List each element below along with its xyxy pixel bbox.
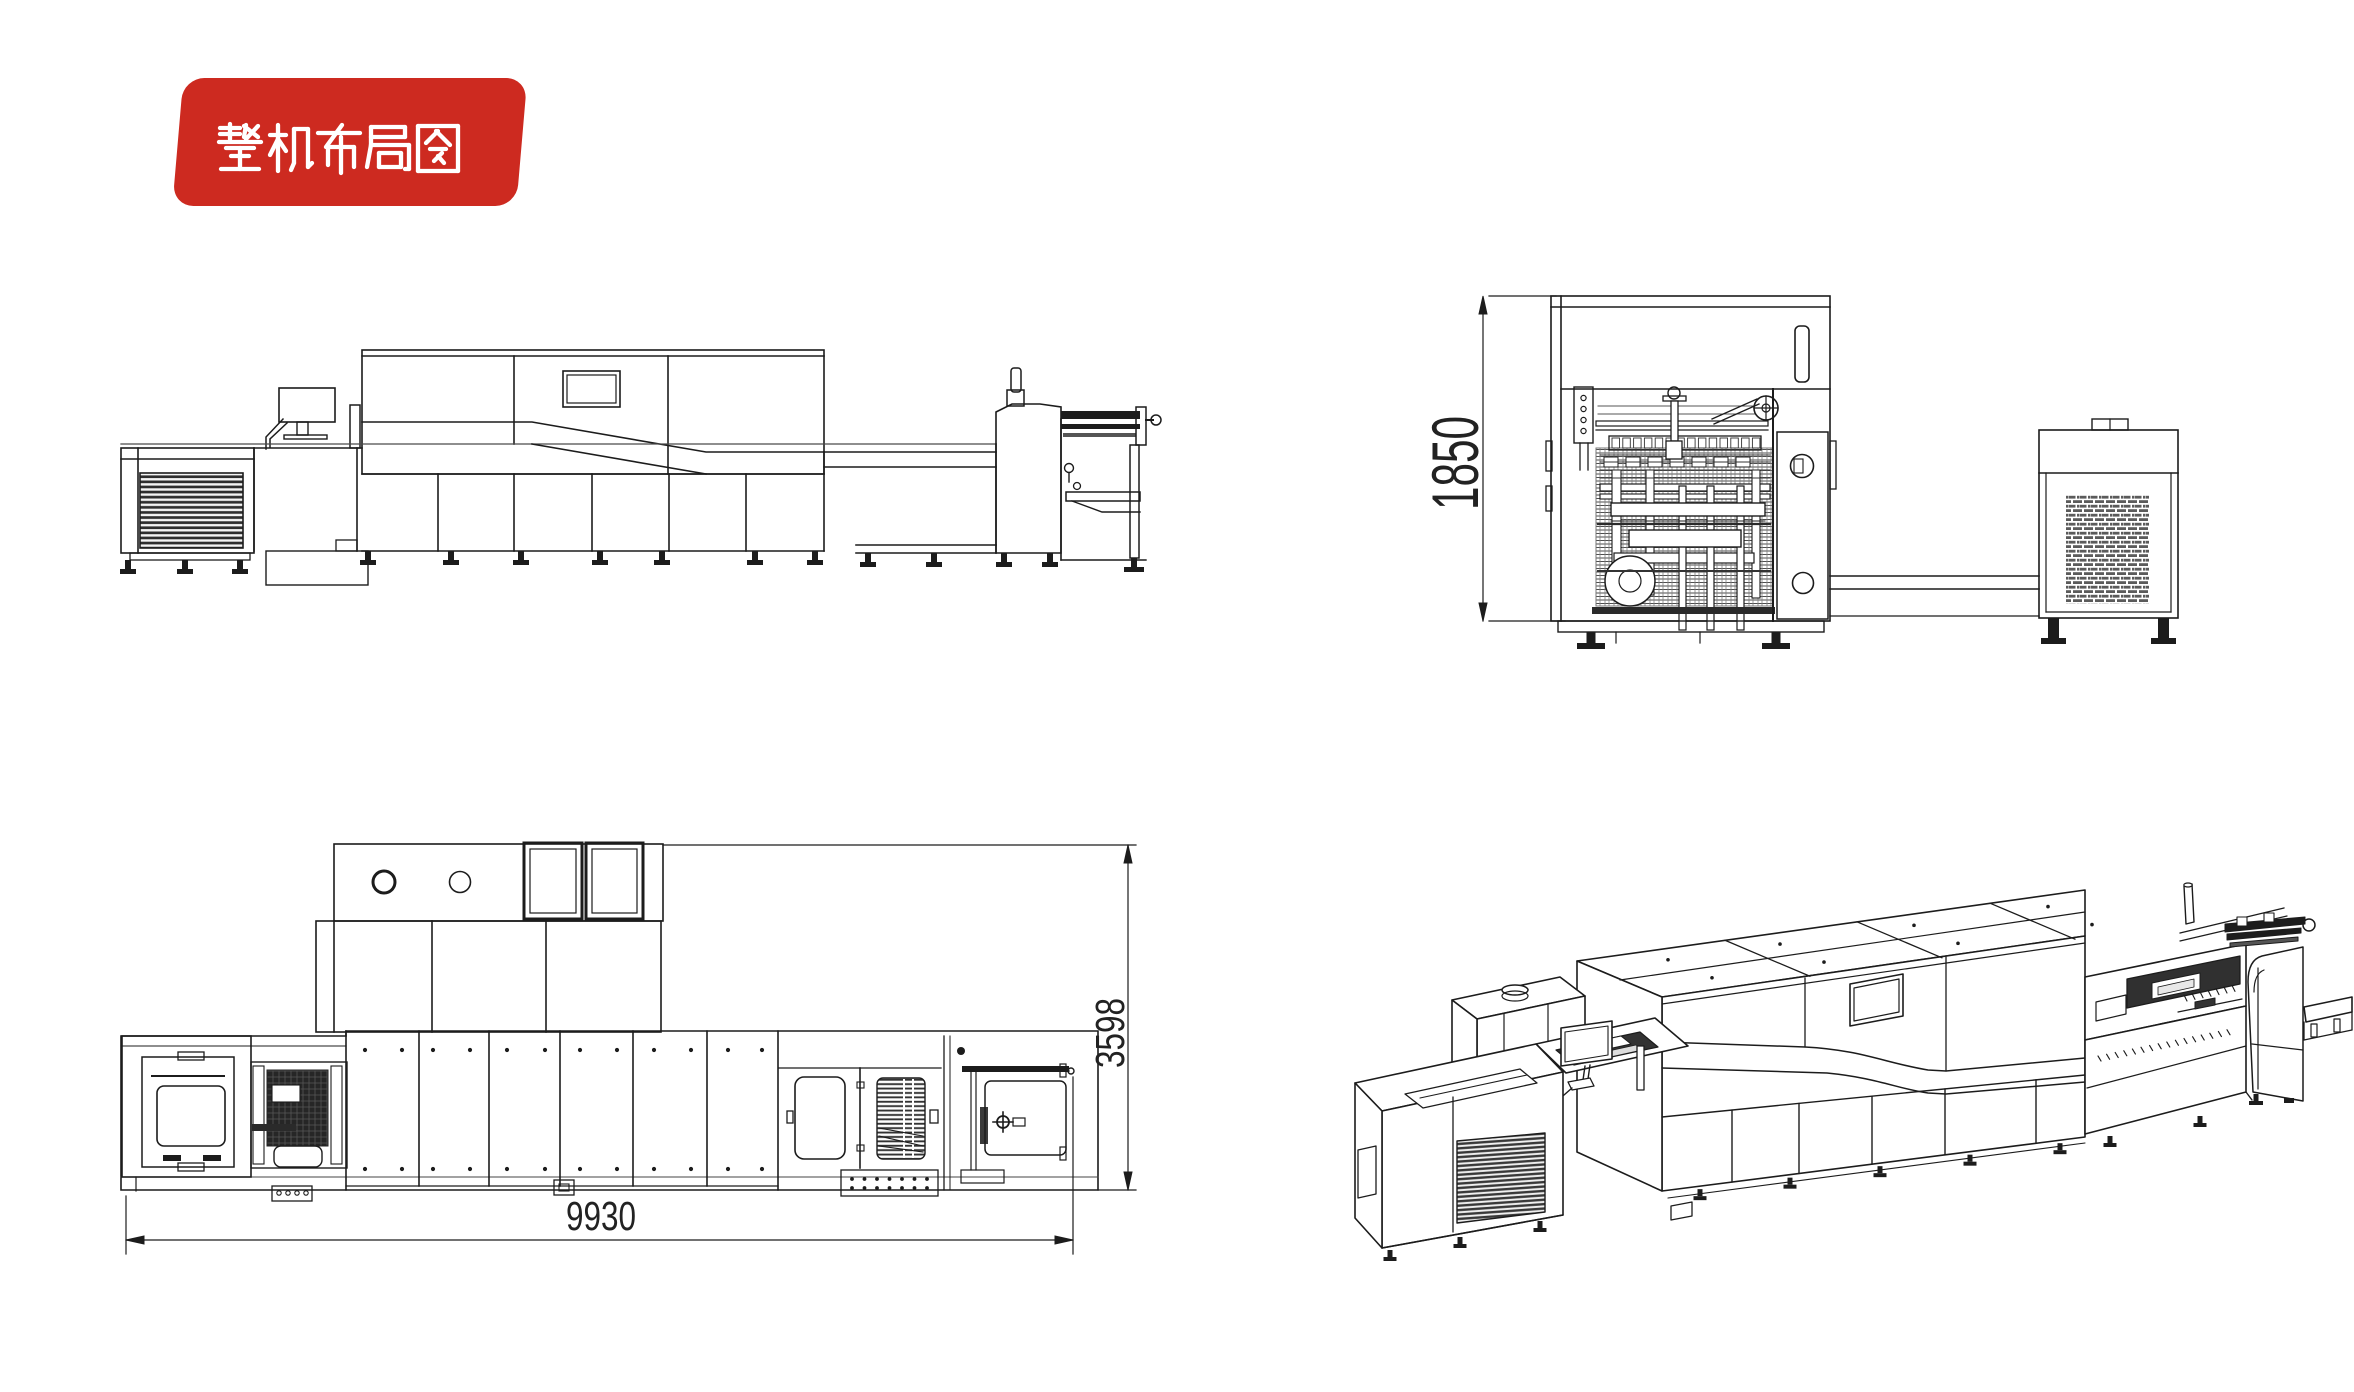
svg-text:1850: 1850: [1418, 416, 1492, 510]
svg-text:3598: 3598: [1087, 998, 1133, 1068]
svg-text:9930: 9930: [566, 1193, 636, 1239]
